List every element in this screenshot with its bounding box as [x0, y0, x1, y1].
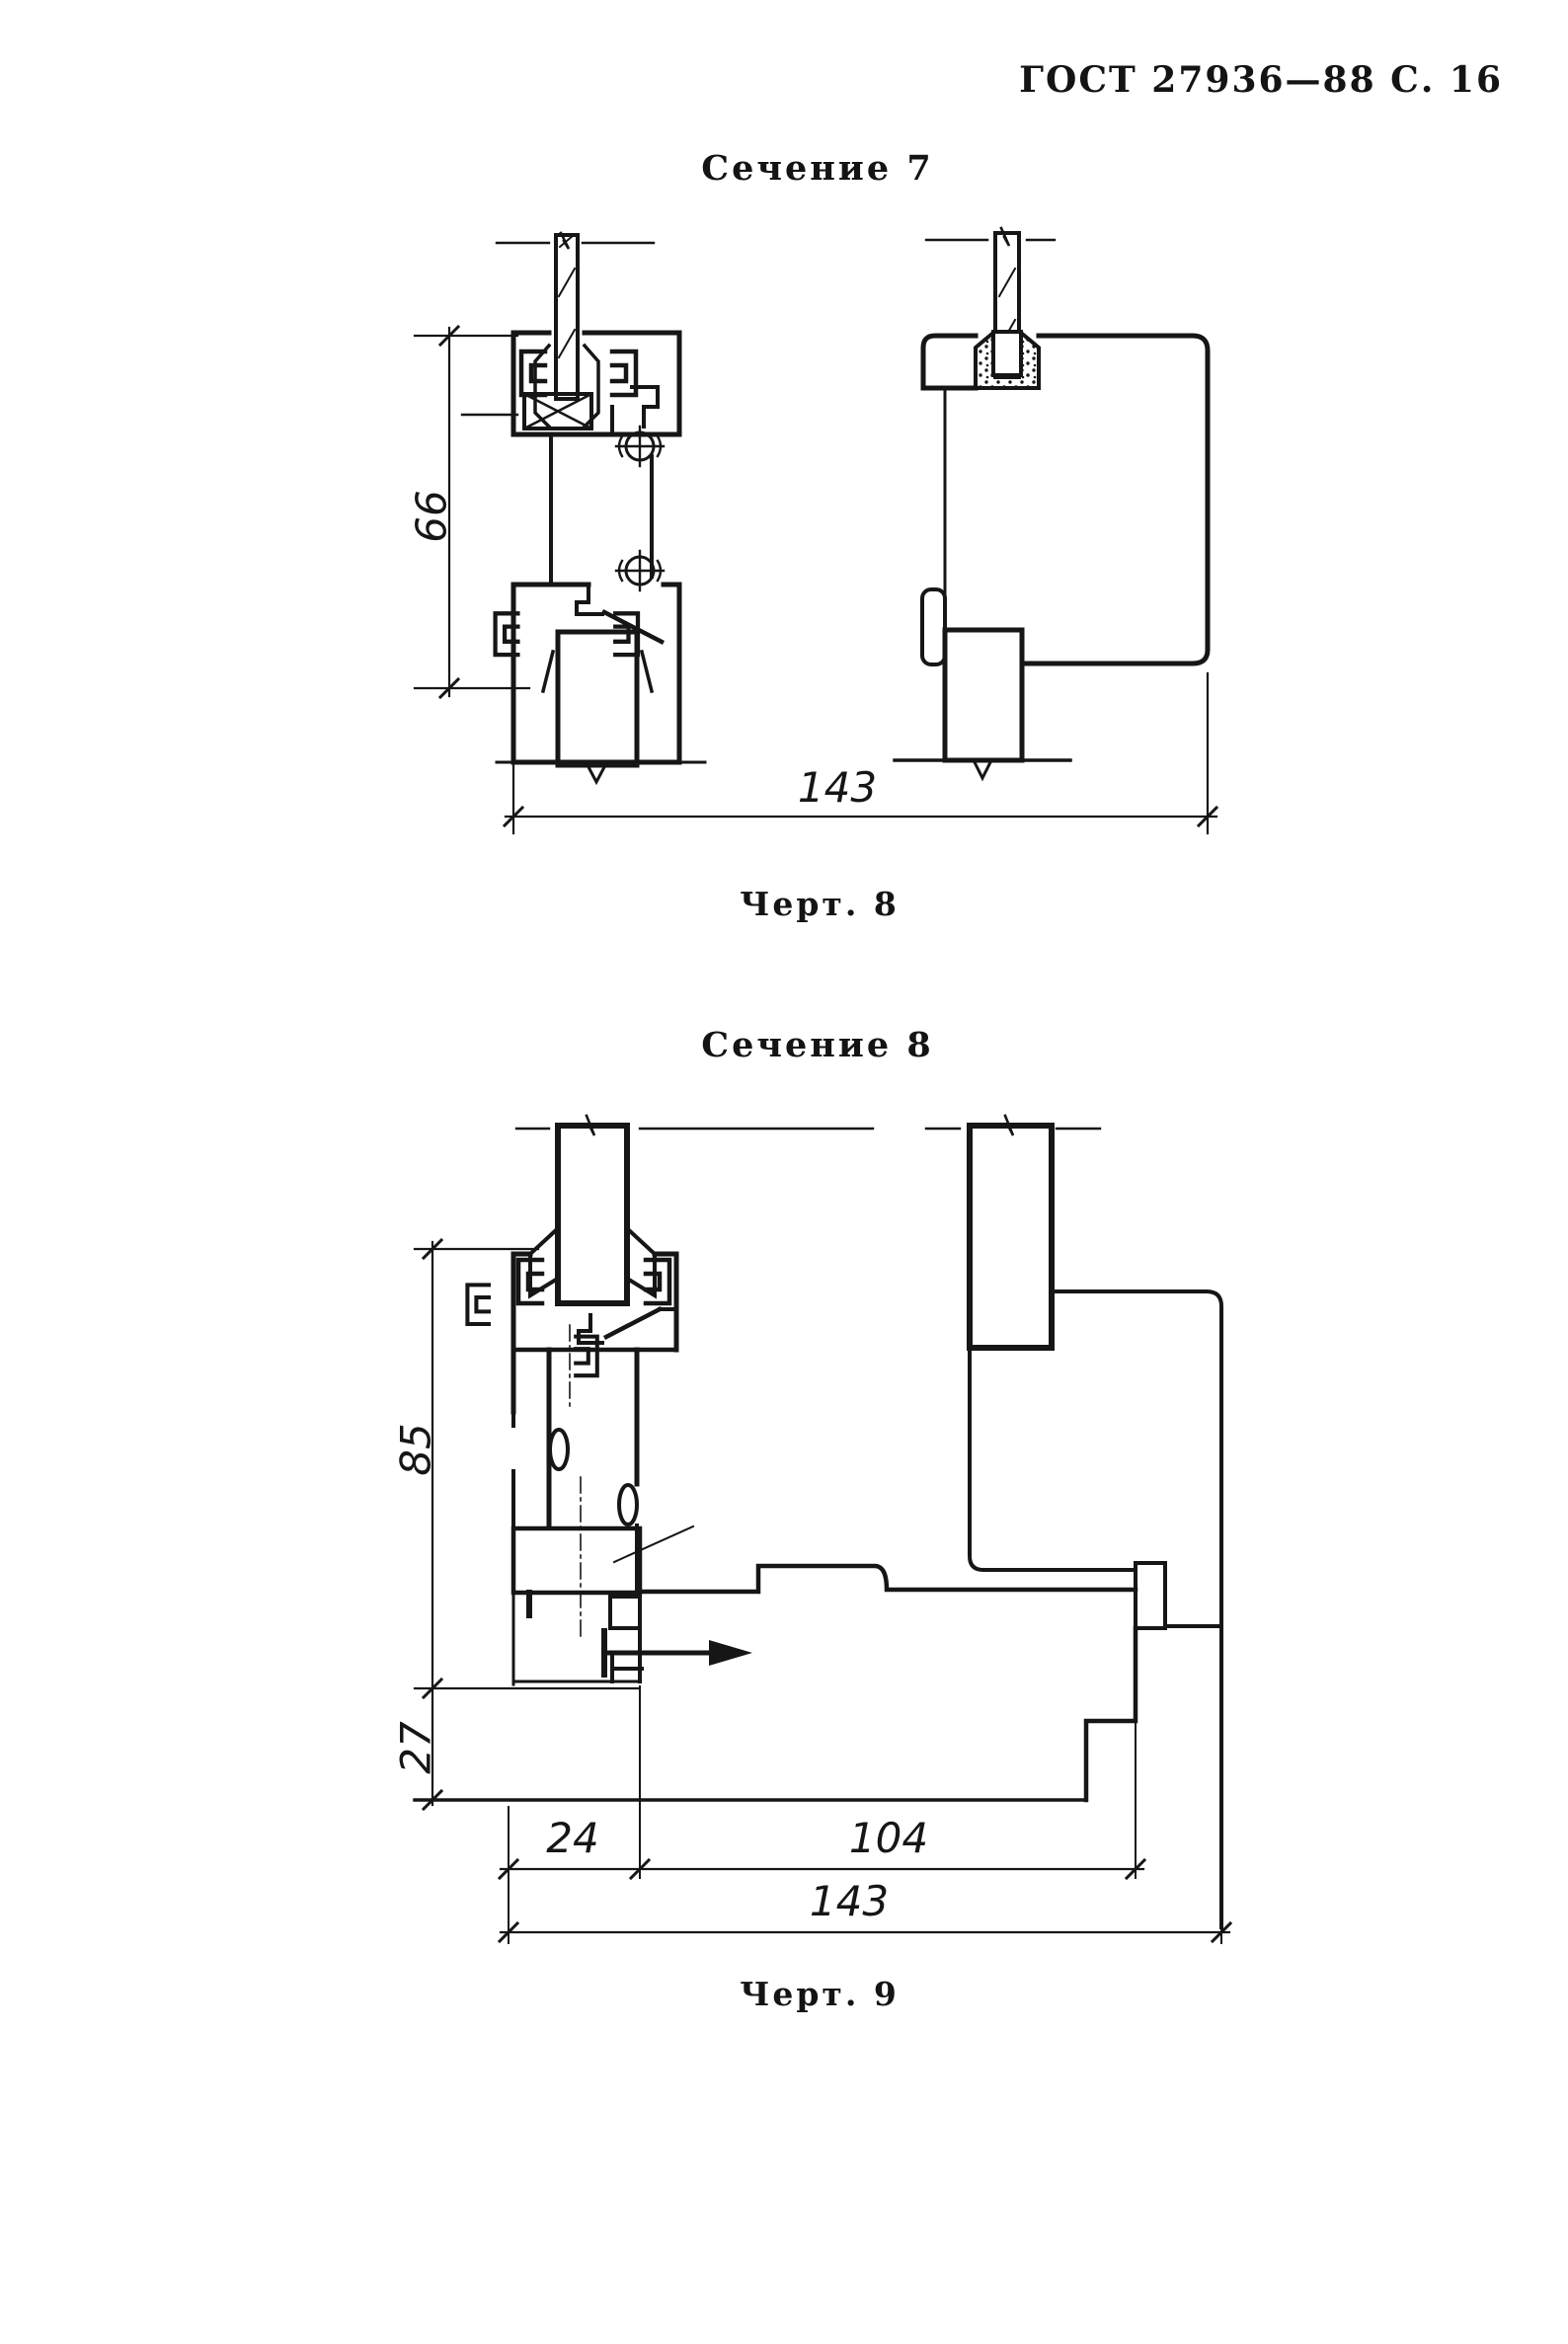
figure2-caption: Черт. 9 [622, 1975, 1017, 2013]
fig1-right-frame-assembly [895, 228, 1208, 778]
fig2-dim-104-label: 104 [849, 1814, 928, 1862]
fig2-sill-gasket-crosshatch [1136, 1563, 1165, 1628]
fig2-wall-panel-crosshatch [970, 1126, 1052, 1348]
fig2-small-crosshatch-block [610, 1597, 640, 1628]
fig2-left-panel-crosshatch [558, 1126, 627, 1303]
fig2-dim-27-label: 27 [392, 1721, 440, 1774]
section7-title: Сечение 7 [620, 148, 1015, 189]
fig2-clip-right-icon [646, 1260, 669, 1303]
fig1-left-glass-pane [556, 235, 578, 399]
gost-standard-page: ГОСТ 27936—88 С. 16 Сечение 7 66 [0, 0, 1568, 2344]
section8-title: Сечение 8 [620, 1025, 1015, 1065]
fig1-screw-icon [616, 551, 664, 590]
fig1-gasket-stippled [976, 332, 1039, 388]
fig2-dims-bottom: 24 104 143 [500, 1686, 1230, 1943]
figure2-drawing: 85 27 [375, 1081, 1323, 1980]
fig2-left-profile-assembly [467, 1116, 873, 1684]
fig2-dim-24-label: 24 [546, 1814, 598, 1862]
fig1-clip-left-icon [521, 352, 545, 395]
fig1-right-crosshatch-block [945, 630, 1022, 778]
fig1-dim-66-label: 66 [408, 490, 456, 542]
fig1-dim-143-label: 143 [798, 763, 877, 812]
fig1-left-profile-assembly [462, 233, 705, 782]
fig1-dim-143: 143 [505, 673, 1216, 833]
fig1-frame-tab [922, 589, 945, 664]
fig2-clip-oval-left [467, 1285, 568, 1469]
figure1-drawing: 66 [375, 207, 1264, 859]
figure1-caption: Черт. 8 [622, 885, 1017, 923]
fig2-clip-oval-right [576, 1337, 637, 1524]
fig2-dim-85-label: 85 [392, 1423, 440, 1475]
page-header-gost-number: ГОСТ 27936—88 С. 16 [1019, 59, 1503, 101]
fig2-right-frame-assembly [415, 1116, 1221, 1927]
fig2-dim-143-label: 143 [810, 1877, 889, 1925]
